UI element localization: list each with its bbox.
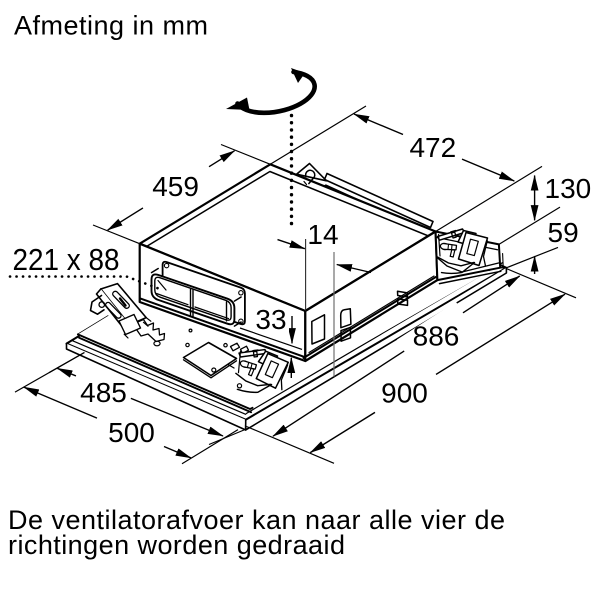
svg-text:886: 886 — [413, 321, 460, 352]
svg-text:14: 14 — [307, 219, 338, 250]
svg-text:130: 130 — [545, 173, 592, 204]
svg-text:richtingen worden gedraaid: richtingen worden gedraaid — [8, 530, 345, 560]
svg-text:485: 485 — [80, 377, 127, 408]
svg-text:Afmeting in mm: Afmeting in mm — [14, 11, 208, 41]
svg-text:33: 33 — [255, 304, 286, 335]
svg-text:459: 459 — [152, 171, 199, 202]
svg-text:500: 500 — [108, 417, 155, 448]
svg-text:900: 900 — [381, 378, 428, 409]
svg-text:472: 472 — [409, 132, 456, 163]
svg-text:221 x 88: 221 x 88 — [13, 242, 120, 277]
svg-text:59: 59 — [548, 217, 579, 248]
